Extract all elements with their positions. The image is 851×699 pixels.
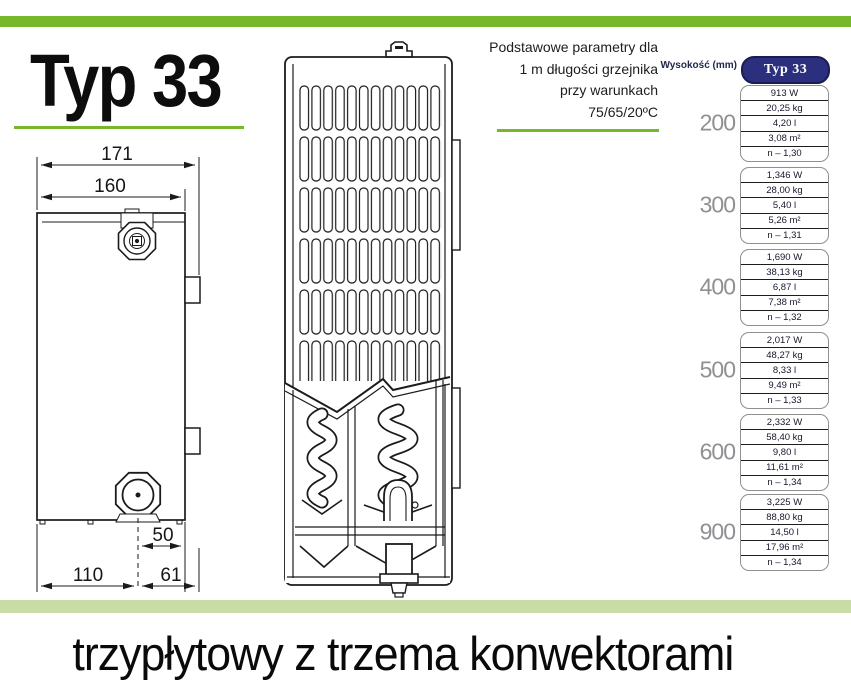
- table-cell: 11,61 m²: [741, 460, 828, 475]
- grille-slots: [299, 85, 442, 381]
- table-cell: 9,49 m²: [741, 378, 828, 393]
- table-cell: 8,33 l: [741, 362, 828, 377]
- table-cell: n – 1,34: [741, 475, 828, 490]
- dimension-label-160: 160: [94, 176, 126, 197]
- table-cell: 3,225 W: [741, 495, 828, 509]
- table-cell: 7,38 m²: [741, 295, 828, 310]
- value-card: 2,017 W 48,27 kg 8,33 l 9,49 m² n – 1,33: [740, 332, 829, 409]
- front-view-drawing: [268, 28, 468, 600]
- table-cell: 2,017 W: [741, 333, 828, 347]
- value-card: 913 W 20,25 kg 4,20 l 3,08 m² n – 1,30: [740, 85, 829, 162]
- table-cell: 913 W: [741, 86, 828, 100]
- wall-bracket-tab: [185, 277, 200, 303]
- height-label: 400: [685, 273, 735, 300]
- table-column-header: Typ 33: [741, 56, 830, 84]
- table-cell: n – 1,30: [741, 146, 828, 161]
- table-group-900: 900 3,225 W 88,80 kg 14,50 l 17,96 m² n …: [685, 494, 830, 569]
- table-cell: 5,26 m²: [741, 213, 828, 228]
- value-card: 2,332 W 58,40 kg 9,80 l 11,61 m² n – 1,3…: [740, 414, 829, 491]
- table-cell: 9,80 l: [741, 444, 828, 459]
- table-cell: n – 1,31: [741, 228, 828, 243]
- table-cell: 6,87 l: [741, 279, 828, 294]
- pipe-arch: [384, 480, 412, 521]
- value-card: 3,225 W 88,80 kg 14,50 l 17,96 m² n – 1,…: [740, 494, 829, 571]
- height-label: 300: [685, 191, 735, 218]
- table-group-500: 500 2,017 W 48,27 kg 8,33 l 9,49 m² n – …: [685, 332, 830, 407]
- dimension-label-61: 61: [160, 565, 181, 586]
- table-cell: n – 1,32: [741, 310, 828, 325]
- top-valve-icon: [119, 213, 156, 260]
- value-card: 1,690 W 38,13 kg 6,87 l 7,38 m² n – 1,32: [740, 249, 829, 326]
- height-label: 500: [685, 356, 735, 383]
- table-cell: 1,690 W: [741, 250, 828, 264]
- dimension-label-171: 171: [101, 144, 133, 165]
- table-cell: 20,25 kg: [741, 100, 828, 115]
- wall-bracket-rail: [452, 140, 460, 250]
- table-cell: 3,08 m²: [741, 131, 828, 146]
- table-cell: 17,96 m²: [741, 540, 828, 555]
- table-group-600: 600 2,332 W 58,40 kg 9,80 l 11,61 m² n –…: [685, 414, 830, 489]
- dimension-label-50: 50: [152, 525, 173, 546]
- wall-bracket-rail: [452, 388, 460, 488]
- note-underline: [497, 129, 659, 132]
- table-cell: 38,13 kg: [741, 264, 828, 279]
- height-label: 200: [685, 109, 735, 136]
- footer-caption: trzypłytowy z trzema konwektorami: [72, 626, 733, 681]
- page-title: Typ 33: [30, 44, 221, 118]
- table-group-300: 300 1,346 W 28,00 kg 5,40 l 5,26 m² n – …: [685, 167, 830, 242]
- table-cell: n – 1,33: [741, 393, 828, 408]
- drain-valve-icon: [380, 544, 418, 597]
- wall-bracket-tab: [185, 428, 200, 454]
- table-row-header: Wysokość (mm): [630, 60, 737, 71]
- table-cell: 14,50 l: [741, 524, 828, 539]
- table-cell: 58,40 kg: [741, 429, 828, 444]
- table-cell: 28,00 kg: [741, 182, 828, 197]
- table-cell: 2,332 W: [741, 415, 828, 429]
- value-card: 1,346 W 28,00 kg 5,40 l 5,26 m² n – 1,31: [740, 167, 829, 244]
- air-vent-cap: [386, 42, 412, 57]
- table-cell: 5,40 l: [741, 197, 828, 212]
- title-underline: [14, 126, 244, 129]
- table-cell: n – 1,34: [741, 555, 828, 570]
- footer-accent-bar: [0, 600, 851, 613]
- table-group-400: 400 1,690 W 38,13 kg 6,87 l 7,38 m² n – …: [685, 249, 830, 324]
- footer-caption-wrap: trzypłytowy z trzema konwektorami: [0, 626, 805, 681]
- dimension-label-110: 110: [73, 565, 103, 586]
- height-label: 900: [685, 518, 735, 545]
- radiator-side-body: [37, 213, 185, 520]
- table-cell: 48,27 kg: [741, 347, 828, 362]
- top-accent-bar: [0, 16, 851, 27]
- side-view-drawing: 171 160 50 110 61: [10, 140, 230, 600]
- table-cell: 4,20 l: [741, 115, 828, 130]
- table-cell: 88,80 kg: [741, 509, 828, 524]
- radiator-spec-sheet: Typ 33 Podstawowe parametry dla 1 m dług…: [0, 0, 851, 699]
- table-cell: 1,346 W: [741, 168, 828, 182]
- table-group-200: 200 913 W 20,25 kg 4,20 l 3,08 m² n – 1,…: [685, 85, 830, 160]
- height-label: 600: [685, 438, 735, 465]
